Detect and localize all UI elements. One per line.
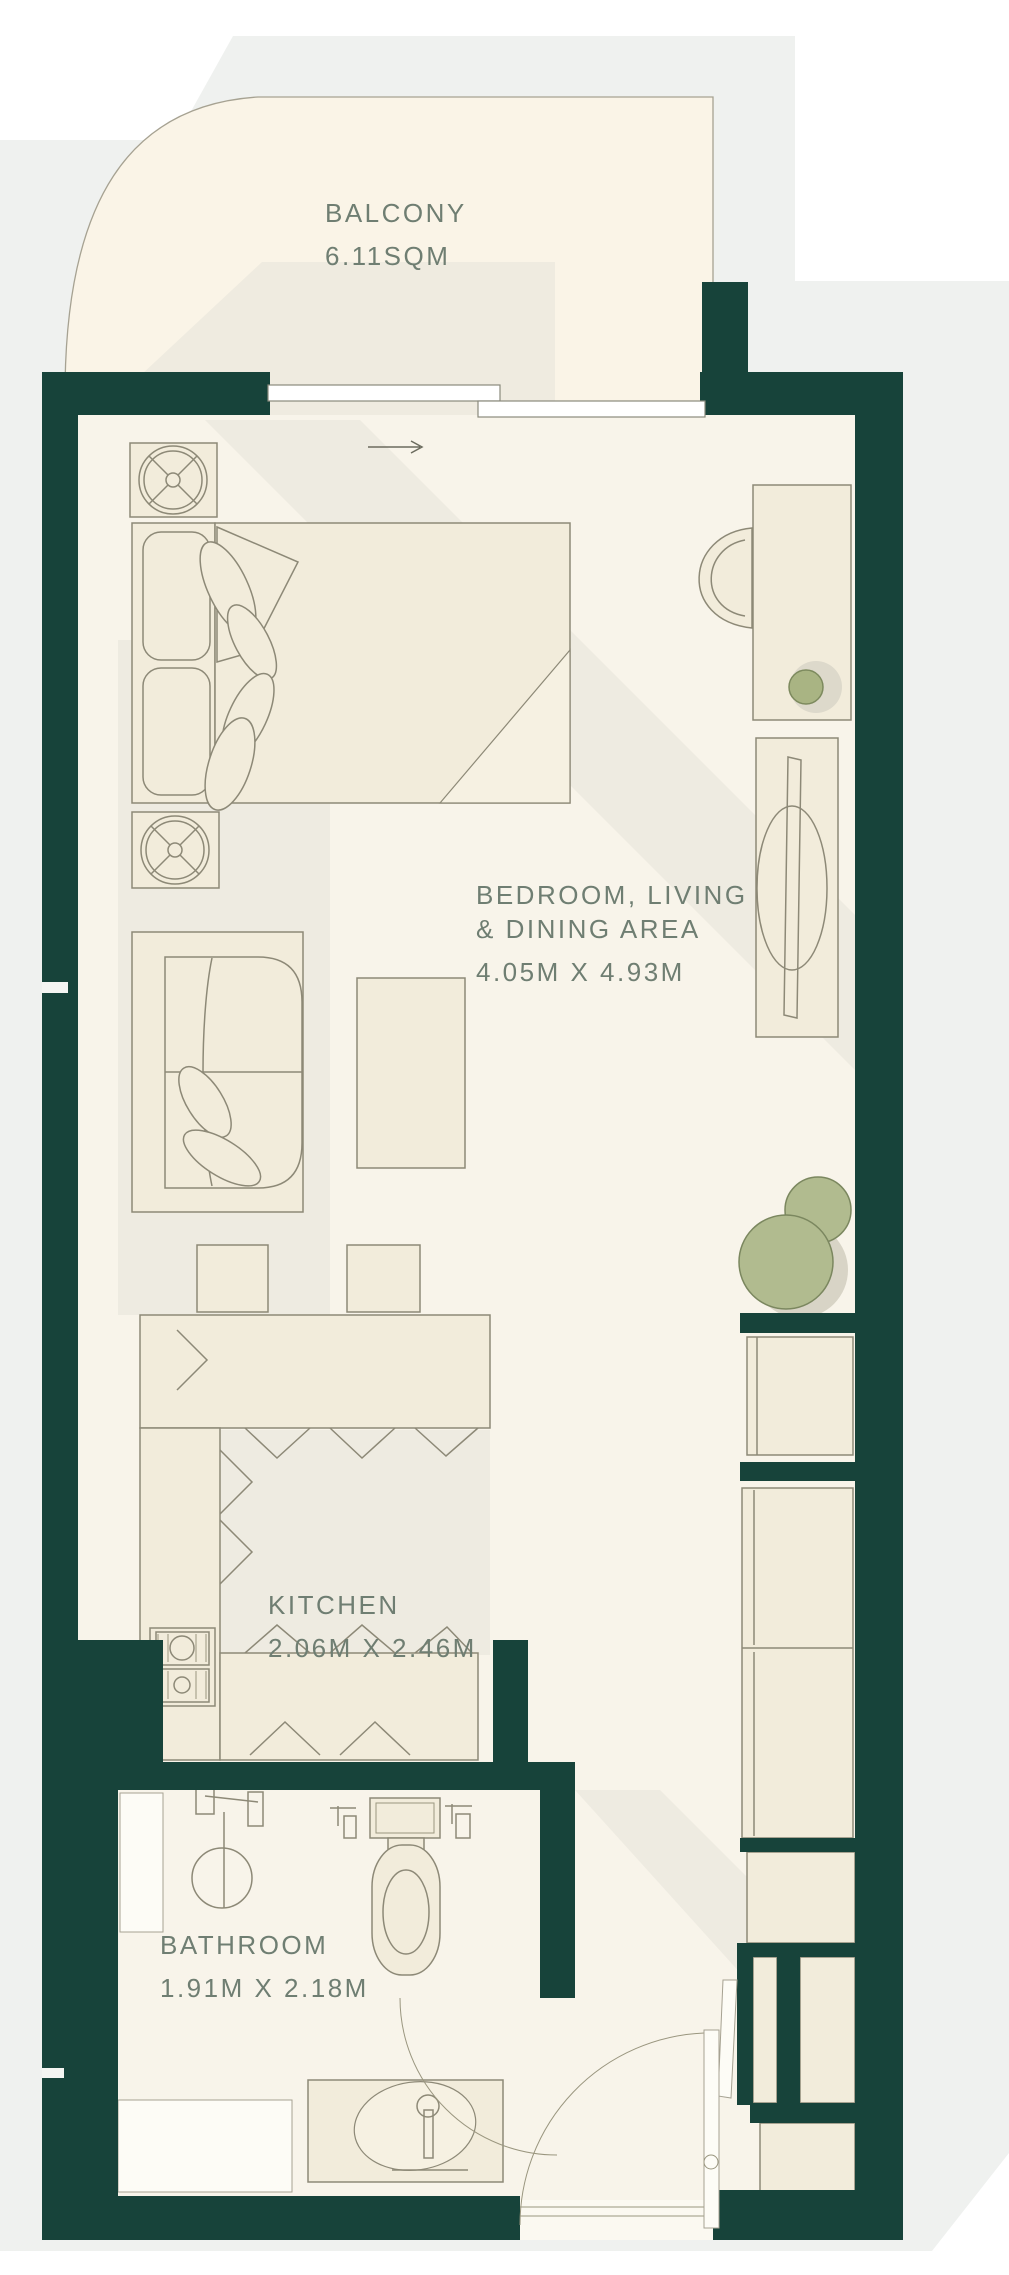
wall-balcony-right xyxy=(702,282,748,377)
wall-right xyxy=(855,372,903,2240)
wall-bathroom-left xyxy=(78,1640,118,2196)
wall-notch xyxy=(42,982,68,993)
kitchen-label: KITCHEN 2.06M X 2.46M xyxy=(268,1588,477,1665)
desk xyxy=(753,485,851,720)
wardrobes xyxy=(742,1337,853,1838)
bedside-fan-table-bottom xyxy=(132,812,219,888)
wall-left xyxy=(42,372,78,2240)
floor-plan-drawing xyxy=(0,0,1009,2275)
double-bed xyxy=(132,523,570,816)
shower-tray xyxy=(118,2100,292,2192)
bathroom-label: BATHROOM 1.91M X 2.18M xyxy=(160,1928,369,2005)
wall-plant-divider xyxy=(740,1313,858,1333)
wall-hall-right xyxy=(737,1943,753,2105)
bathroom-name: BATHROOM xyxy=(160,1928,369,1962)
wall-bottom-right xyxy=(713,2190,903,2240)
sofa xyxy=(132,932,303,1212)
tv-console xyxy=(756,738,838,1037)
wall-bathroom-right xyxy=(540,1790,575,1998)
entry-threshold xyxy=(520,2200,713,2240)
bedroom-dims: 4.05M X 4.93M xyxy=(476,955,748,989)
bedroom-name-line1: BEDROOM, LIVING xyxy=(476,878,748,912)
bedroom-name-line2: & DINING AREA xyxy=(476,912,748,946)
balcony-area: 6.11SQM xyxy=(325,239,467,273)
vanity-sink xyxy=(308,2074,503,2182)
wall-wardrobe-divider-2 xyxy=(740,1838,858,1852)
wall-closet-divider-2 xyxy=(750,2103,858,2123)
coffee-table xyxy=(357,978,465,1168)
bathroom-dims: 1.91M X 2.18M xyxy=(160,1971,369,2005)
floor-plan: BALCONY 6.11SQM BEDROOM, LIVING & DINING… xyxy=(0,0,1009,2275)
entry-door-leaf xyxy=(704,2030,719,2228)
bedside-fan-table-top xyxy=(130,443,217,517)
kitchen-name: KITCHEN xyxy=(268,1588,477,1622)
wall-bottom-left xyxy=(42,2196,520,2240)
balcony-label: BALCONY 6.11SQM xyxy=(325,196,467,273)
wall-closet-divider-1 xyxy=(740,1943,858,1957)
wall-wardrobe-divider xyxy=(740,1462,858,1481)
bedroom-label: BEDROOM, LIVING & DINING AREA 4.05M X 4.… xyxy=(476,878,748,989)
desk-stool xyxy=(789,670,823,704)
kitchen-dims: 2.06M X 2.46M xyxy=(268,1631,477,1665)
wall-notch xyxy=(42,2068,64,2078)
balcony-name: BALCONY xyxy=(325,196,467,230)
storage-closets xyxy=(747,1852,855,2192)
wall-closet-mullion xyxy=(777,1957,800,2103)
wall-bathroom-top xyxy=(78,1762,575,1790)
